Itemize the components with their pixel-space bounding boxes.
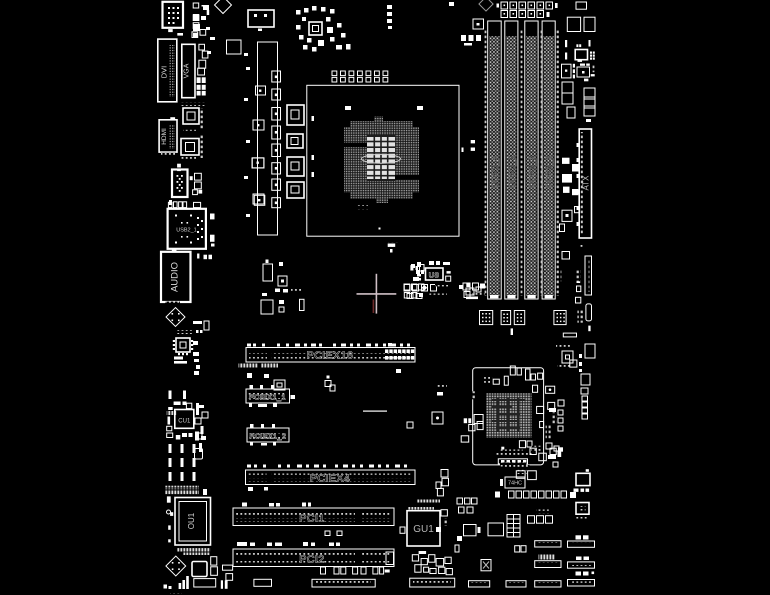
svg-text:USB2_1: USB2_1 (176, 228, 197, 234)
svg-text:OU1: OU1 (187, 512, 196, 529)
svg-text:PCI2: PCI2 (299, 554, 324, 566)
svg-text:U8: U8 (429, 271, 440, 280)
svg-text:DDR3_3: DDR3_3 (527, 155, 537, 188)
svg-text:ATX: ATX (581, 175, 590, 191)
svg-text:PCIEX1_2: PCIEX1_2 (250, 434, 287, 441)
svg-text:PCIEX4: PCIEX4 (310, 473, 350, 485)
svg-text:HDMI: HDMI (161, 128, 168, 145)
svg-text:PCI1: PCI1 (299, 513, 324, 525)
svg-text:VGA: VGA (184, 63, 191, 78)
svg-text:PCIEX1_1: PCIEX1_1 (249, 395, 286, 402)
svg-text:AUDIO: AUDIO (170, 262, 181, 292)
svg-text:PCIEX16: PCIEX16 (307, 350, 354, 362)
svg-text:DDR3_1: DDR3_1 (544, 155, 554, 188)
svg-text:74HC: 74HC (508, 481, 522, 487)
svg-text:DDR3_2: DDR3_2 (507, 155, 517, 188)
svg-text:CU1: CU1 (178, 419, 191, 425)
svg-text:GU1: GU1 (413, 524, 434, 535)
svg-text:DVI: DVI (160, 66, 169, 79)
svg-text:DDR3_4: DDR3_4 (490, 155, 500, 188)
